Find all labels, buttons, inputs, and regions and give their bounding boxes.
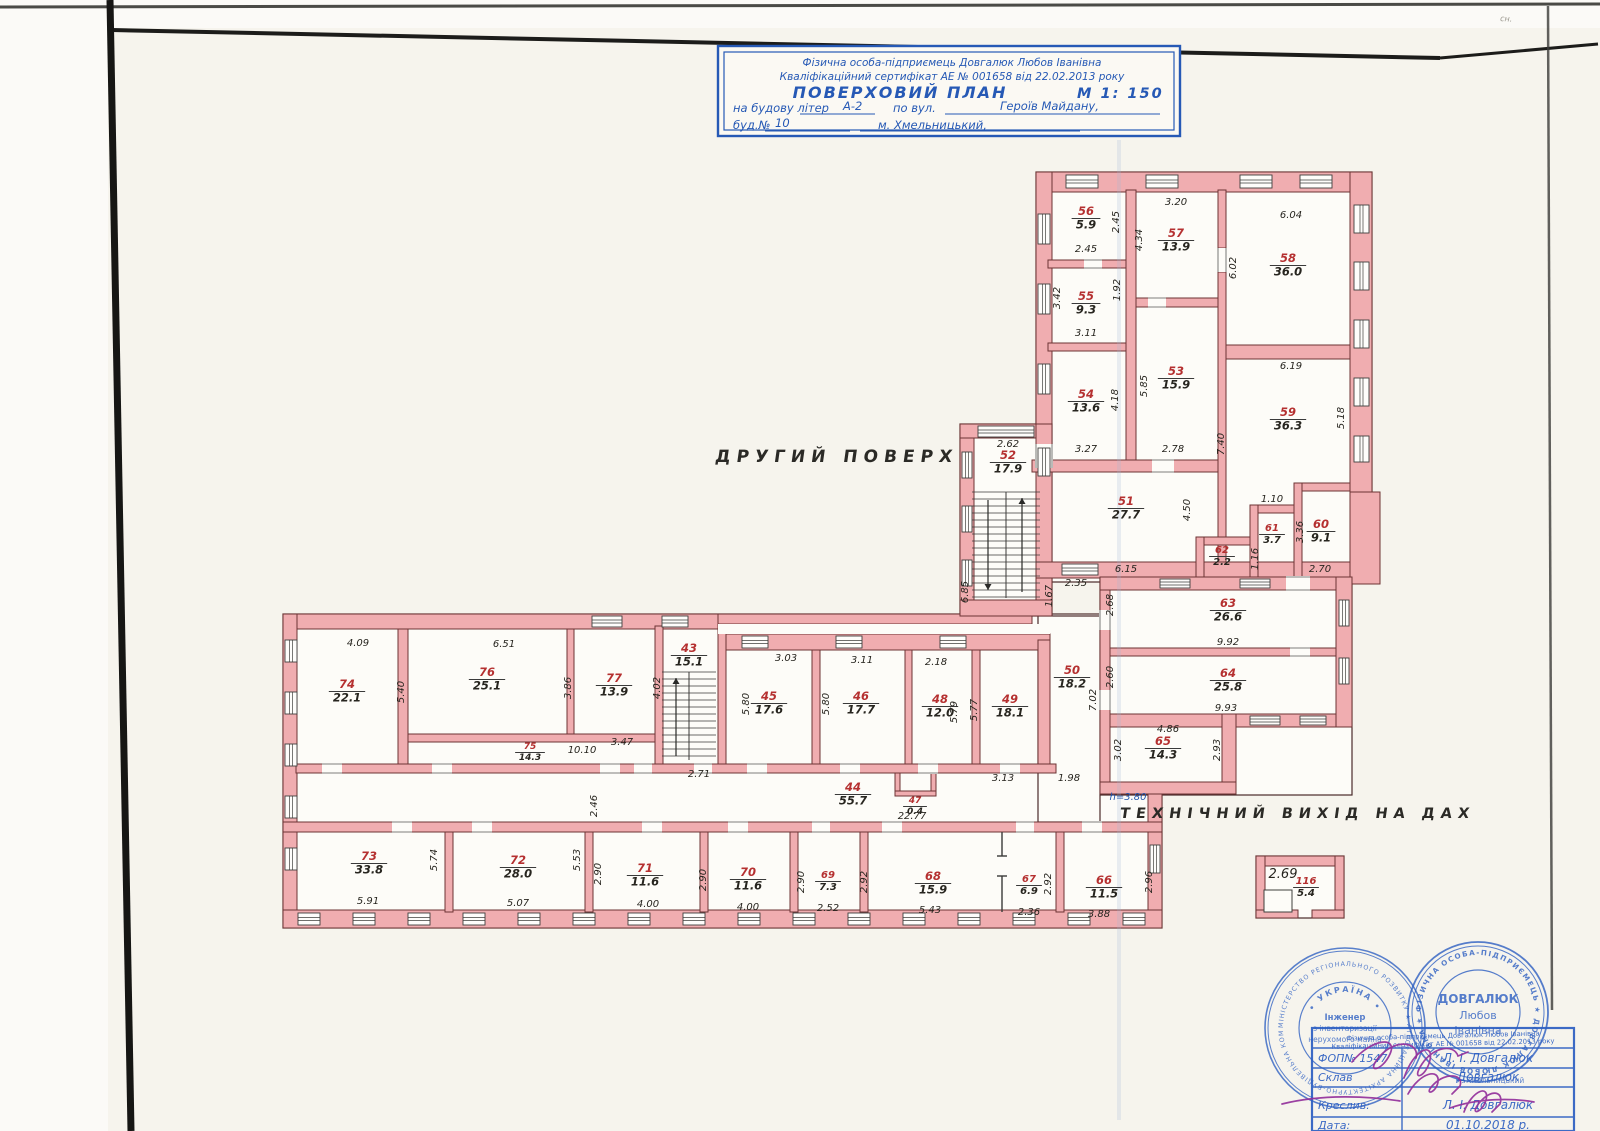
dim-label: 1.98	[1058, 773, 1080, 784]
dim-label: 2.60	[1105, 666, 1116, 688]
window	[408, 913, 430, 925]
window	[285, 744, 297, 766]
dim-label: 7.02	[1088, 689, 1099, 711]
dim-label: 3.88	[1088, 909, 1110, 920]
roof-exit-label: ТЕХНІЧНИЙ ВИХІД НА ДАХ	[1119, 804, 1477, 822]
window	[738, 913, 760, 925]
wall	[1100, 577, 1350, 590]
dim-label: 4.86	[1157, 724, 1179, 735]
dim-label: 4.02	[652, 677, 663, 699]
floor-title: ДРУГИЙ ПОВЕРХ	[714, 445, 960, 467]
dim-label: 2.93	[1212, 739, 1223, 761]
dim-label: 2.90	[698, 869, 709, 891]
ministry-center-3: нерухомого майна	[1308, 1035, 1382, 1044]
room-area-label: 9.3	[1076, 303, 1096, 317]
dim-label: 2.69	[1269, 867, 1298, 882]
room-area-label: 17.6	[755, 703, 783, 717]
room-number-label: 68	[925, 869, 941, 883]
door-opening	[1286, 576, 1310, 591]
room-area-label: 9.1	[1311, 531, 1331, 545]
room-number-label: 61	[1265, 523, 1279, 534]
room-number-label: 62	[1215, 545, 1229, 556]
dim-label: 22.77	[898, 811, 927, 822]
window	[742, 636, 768, 648]
room-area-label: 13.9	[600, 685, 628, 699]
room-number-label: 59	[1280, 405, 1296, 419]
wall	[1336, 577, 1352, 727]
room-area-label: 18.1	[996, 706, 1024, 720]
city-value: м. Хмельницький,	[878, 118, 987, 132]
wall	[1048, 343, 1126, 351]
room-area-label: 15.9	[919, 883, 947, 897]
dim-label: 3.03	[775, 653, 797, 664]
room-number-label: 71	[637, 861, 653, 875]
window	[683, 913, 705, 925]
floor-plan-scan: сн. 7422.17625.17713.94315.14517.64617.7…	[0, 0, 1600, 1131]
window	[1339, 600, 1349, 626]
window	[285, 640, 297, 662]
dim-label: 2.90	[593, 863, 604, 885]
dim-label: 9.92	[1217, 637, 1239, 648]
dim-label: h=3.80	[1110, 792, 1147, 803]
room-number-label: 76	[479, 665, 495, 679]
wall	[905, 650, 912, 768]
room-area-label: 22.1	[333, 691, 361, 705]
dim-label: 5.91	[357, 896, 379, 907]
room-number-label: 48	[931, 692, 948, 706]
dim-label: 5.53	[572, 849, 583, 871]
dim-label: 6.51	[493, 639, 515, 650]
room-area-label: 27.7	[1112, 508, 1140, 522]
window	[1066, 175, 1098, 188]
window	[962, 452, 972, 478]
dim-label: 1.16	[1250, 548, 1261, 570]
wall	[1218, 190, 1226, 248]
room-number-label: 53	[1168, 364, 1184, 378]
room-number-label: 116	[1296, 876, 1317, 887]
dim-label: 2.71	[688, 769, 710, 780]
fop-center-2: Любов	[1459, 1009, 1497, 1022]
dim-label: 5.74	[429, 849, 440, 871]
room-number-label: 52	[1000, 448, 1016, 462]
room-area-label: 11.6	[734, 879, 762, 893]
window	[1240, 579, 1270, 588]
dim-label: 3.02	[1113, 739, 1124, 761]
room-number-label: 49	[1001, 692, 1018, 706]
door-opening	[1148, 297, 1166, 308]
window	[628, 913, 650, 925]
window	[1354, 378, 1369, 406]
dim-label: 5.18	[1336, 407, 1347, 429]
wall	[1218, 272, 1226, 562]
dim-label: 4.00	[637, 899, 659, 910]
wall	[1056, 832, 1064, 912]
wall	[1196, 537, 1204, 578]
room-number-label: 60	[1313, 517, 1329, 531]
room-area-label: 13.6	[1072, 401, 1100, 415]
dim-label: 1.67	[1044, 584, 1055, 607]
dim-label: 4.00	[737, 902, 759, 913]
window	[958, 913, 980, 925]
dim-label: 6.19	[1280, 361, 1302, 372]
scanned-page: сн. 7422.17625.17713.94315.14517.64617.7…	[0, 0, 1600, 1131]
room-number-label: 72	[510, 853, 526, 867]
dim-label: 3.42	[1052, 287, 1063, 309]
dim-label: 5.85	[1139, 375, 1150, 397]
dim-label: 2.45	[1075, 244, 1097, 255]
wall	[718, 624, 726, 768]
window	[962, 506, 972, 532]
wall	[1032, 460, 1218, 472]
door-opening	[1084, 259, 1102, 269]
window	[1038, 214, 1050, 244]
building-letter-value: А-2	[842, 99, 862, 113]
dim-label: 2.68	[1105, 594, 1116, 616]
room-area-label: 25.8	[1214, 680, 1242, 694]
dim-label: 4.34	[1134, 229, 1145, 251]
plan-title: ПОВЕРХОВИЙ ПЛАН	[793, 83, 1008, 102]
ministry-center-2: з інвентаризації	[1313, 1024, 1378, 1033]
door-opening	[812, 821, 830, 833]
room-area-label: 11.5	[1090, 887, 1118, 901]
room-number-label: 55	[1078, 289, 1094, 303]
stamp-row-value: 01.10.2018 р.	[1446, 1118, 1530, 1131]
room-number-label: 50	[1064, 663, 1080, 677]
dim-label: 2.18	[925, 657, 947, 668]
dim-label: 2.36	[1018, 907, 1040, 918]
door-opening	[1016, 821, 1034, 833]
room-area-label: 25.1	[473, 679, 501, 693]
fop-center-1: ДОВГАЛЮК	[1438, 992, 1519, 1006]
dim-label: 5.07	[507, 898, 530, 909]
dim-label: 3.27	[1075, 444, 1098, 455]
window	[662, 616, 688, 627]
window	[573, 913, 595, 925]
door-opening	[432, 763, 452, 774]
ministry-center-1: Інженер	[1325, 1013, 1366, 1023]
wall	[1226, 345, 1350, 359]
room-number-label: 58	[1280, 251, 1296, 265]
room-number-label: 74	[339, 677, 355, 691]
room-number-label: 43	[680, 641, 697, 655]
room-area-label: 14.3	[1149, 748, 1177, 762]
dim-label: 2.70	[1309, 564, 1331, 575]
window	[1354, 262, 1369, 290]
door-opening	[634, 763, 652, 774]
room-area-label: 6.9	[1020, 886, 1038, 897]
dim-label: 2.62	[997, 439, 1019, 450]
dim-label: 5.77	[969, 698, 980, 721]
dim-label: 4.50	[1182, 499, 1193, 521]
door-opening	[472, 821, 492, 833]
window	[1240, 175, 1272, 188]
window	[1250, 716, 1280, 725]
dim-label: 5.40	[396, 681, 407, 703]
dim-label: 3.47	[611, 737, 634, 748]
room-number-label: 73	[361, 849, 377, 863]
window	[518, 913, 540, 925]
wall	[283, 614, 718, 629]
dim-label: 5.79	[949, 701, 960, 723]
dim-label: 5.43	[919, 905, 941, 916]
wall	[445, 832, 453, 912]
room-area-label: 17.7	[847, 703, 875, 717]
dim-label: 3.13	[992, 773, 1014, 784]
dim-label: 7.40	[1216, 433, 1227, 455]
window	[1300, 716, 1326, 725]
dim-label: 2.92	[859, 871, 870, 893]
street-label: по вул.	[893, 101, 936, 115]
certificate-line: Кваліфікаційний сертифікат АЕ № 001658 в…	[780, 71, 1126, 83]
pencil-corner-mark: сн.	[1500, 14, 1513, 24]
dim-label: 1.10	[1261, 494, 1283, 505]
title-block: Фізична особа-підприємець Довгалюк Любов…	[718, 46, 1180, 136]
window	[1123, 913, 1145, 925]
wall	[1350, 492, 1380, 584]
window	[1068, 913, 1090, 925]
dim-label: 2.45	[1111, 211, 1122, 233]
dim-label: 6.04	[1280, 210, 1302, 221]
room-number-label: 46	[852, 689, 869, 703]
door-opening	[1099, 690, 1111, 710]
dim-label: 3.11	[851, 655, 873, 666]
window	[592, 616, 622, 627]
window	[285, 796, 297, 818]
room-area-label: 17.9	[994, 462, 1022, 476]
room-number-label: 63	[1220, 596, 1236, 610]
dim-label: 10.10	[568, 745, 597, 756]
wall	[1256, 856, 1344, 866]
dim-label: 6.15	[1115, 564, 1137, 575]
house-number-value: 10	[775, 116, 790, 130]
room-number-label: 75	[524, 742, 537, 752]
room-area-label: 28.0	[504, 867, 532, 881]
wall	[585, 832, 593, 912]
dim-label: 2.92	[1043, 873, 1054, 895]
building-letter-label: на будову літер	[733, 101, 829, 115]
window	[285, 692, 297, 714]
dim-label: 2.90	[796, 871, 807, 893]
wall	[1312, 910, 1344, 918]
dim-label: 2.96	[1144, 871, 1155, 893]
room-number-label: 77	[606, 671, 622, 685]
house-number-label: буд.№	[733, 118, 771, 132]
door-opening	[600, 763, 620, 774]
dim-label: 6.02	[1228, 257, 1239, 279]
room-area-label: 55.7	[839, 794, 867, 808]
door-opening	[728, 821, 748, 833]
room-number-label: 70	[740, 865, 756, 879]
window	[1146, 175, 1178, 188]
window	[978, 426, 1034, 437]
window	[793, 913, 815, 925]
window	[1354, 205, 1369, 233]
dim-label: 2.46	[589, 795, 600, 817]
room-number-label: 69	[821, 870, 835, 881]
room-area-label: 11.6	[631, 875, 659, 889]
room-area-label: 15.1	[675, 655, 703, 669]
dim-label: 4.09	[347, 638, 369, 649]
wall-gap	[718, 624, 1050, 634]
room-number-label: 65	[1155, 734, 1171, 748]
certifier-name: Фізична особа-підприємець Довгалюк Любов…	[803, 57, 1102, 69]
window	[1300, 175, 1332, 188]
door-opening	[1082, 821, 1102, 833]
room-number-label: 57	[1168, 226, 1184, 240]
window	[836, 636, 862, 648]
room-number-label: 66	[1096, 873, 1112, 887]
window	[940, 636, 966, 648]
room-area-label: 26.6	[1214, 610, 1242, 624]
window	[1160, 579, 1190, 588]
room-area-label: 13.9	[1162, 240, 1190, 254]
dim-label: 2.78	[1162, 444, 1184, 455]
door-opening	[1290, 647, 1310, 657]
wall	[1038, 640, 1050, 772]
dim-label: 5.80	[741, 693, 752, 715]
door-opening	[322, 763, 342, 774]
dim-label: 4.18	[1110, 389, 1121, 411]
door-opening	[642, 821, 662, 833]
stamp-row-label: Дата:	[1317, 1119, 1350, 1131]
door-opening	[392, 821, 412, 833]
room-number-label: 67	[1022, 874, 1036, 885]
room-area-label: 3.7	[1263, 535, 1281, 546]
room-number-label: 54	[1078, 387, 1094, 401]
window	[848, 913, 870, 925]
window	[1354, 436, 1369, 462]
window	[1339, 658, 1349, 684]
dim-label: 3.36	[1295, 521, 1306, 543]
window	[353, 913, 375, 925]
room-number-label: 56	[1078, 204, 1094, 218]
room-area-label: 33.8	[355, 863, 383, 877]
room-area-label: 5.9	[1076, 218, 1096, 232]
room-area-label: 5.4	[1297, 888, 1315, 899]
door-opening	[840, 763, 860, 774]
dim-label: 2.52	[817, 903, 839, 914]
wall	[812, 650, 820, 768]
dim-label: 3.11	[1075, 328, 1097, 339]
street-value: Героїв Майдану,	[1000, 99, 1099, 113]
wall	[296, 764, 1056, 773]
window	[1038, 284, 1050, 314]
dim-label: 2.35	[1065, 578, 1087, 589]
window	[1038, 448, 1050, 476]
window	[1150, 845, 1160, 873]
room-area-label: 18.2	[1058, 677, 1086, 691]
door-opening	[882, 821, 902, 833]
door-opening	[1152, 459, 1174, 473]
door-opening	[1217, 248, 1227, 272]
window	[1038, 364, 1050, 394]
room-number-label: 45	[760, 689, 777, 703]
wall	[1335, 856, 1344, 918]
dim-label: 3.86	[563, 677, 574, 699]
room-number-label: 51	[1118, 494, 1134, 508]
scan-margin-left	[0, 0, 108, 1131]
dim-label: 1.92	[1112, 279, 1123, 301]
window	[1062, 564, 1098, 575]
room-area-label: 7.3	[819, 882, 837, 893]
window	[298, 913, 320, 925]
dim-label: 3.20	[1165, 197, 1187, 208]
dim-label: 9.93	[1215, 703, 1237, 714]
room-number-label: 44	[844, 780, 861, 794]
door-opening	[918, 763, 938, 774]
dim-label: 5.80	[821, 693, 832, 715]
window	[285, 848, 297, 870]
fop-center-3: Іванівна	[1454, 1024, 1501, 1037]
window	[1354, 320, 1369, 348]
room-area-label: 36.0	[1274, 265, 1302, 279]
wall	[960, 600, 1052, 616]
room-area-label: 2.2	[1213, 557, 1231, 568]
room-area-label: 36.3	[1274, 419, 1302, 433]
dim-label: 6.85	[960, 581, 971, 603]
room-area-label: 15.9	[1162, 378, 1190, 392]
door-opening	[747, 763, 767, 774]
interior-step	[1264, 890, 1292, 912]
room-number-label: 47	[908, 796, 922, 806]
room-area-label: 14.3	[519, 753, 541, 763]
room-number-label: 64	[1220, 666, 1236, 680]
window	[463, 913, 485, 925]
